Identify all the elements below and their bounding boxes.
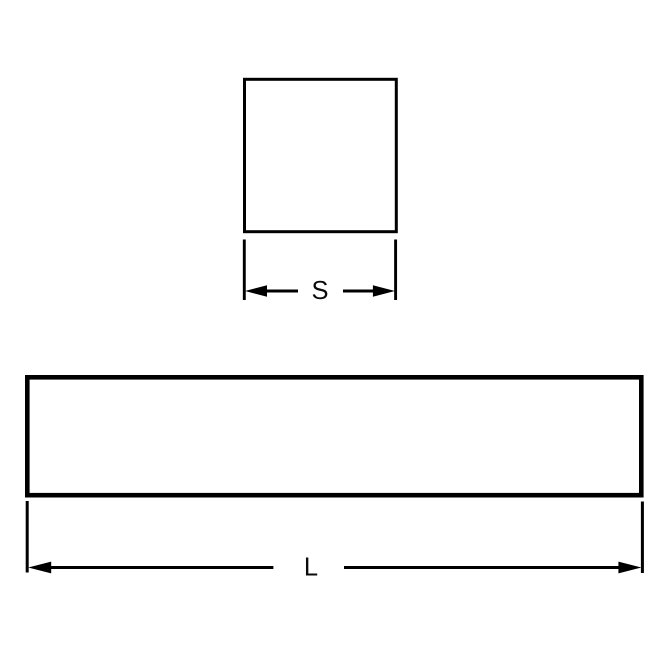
svg-text:S: S (311, 277, 328, 305)
svg-text:L: L (304, 554, 318, 582)
